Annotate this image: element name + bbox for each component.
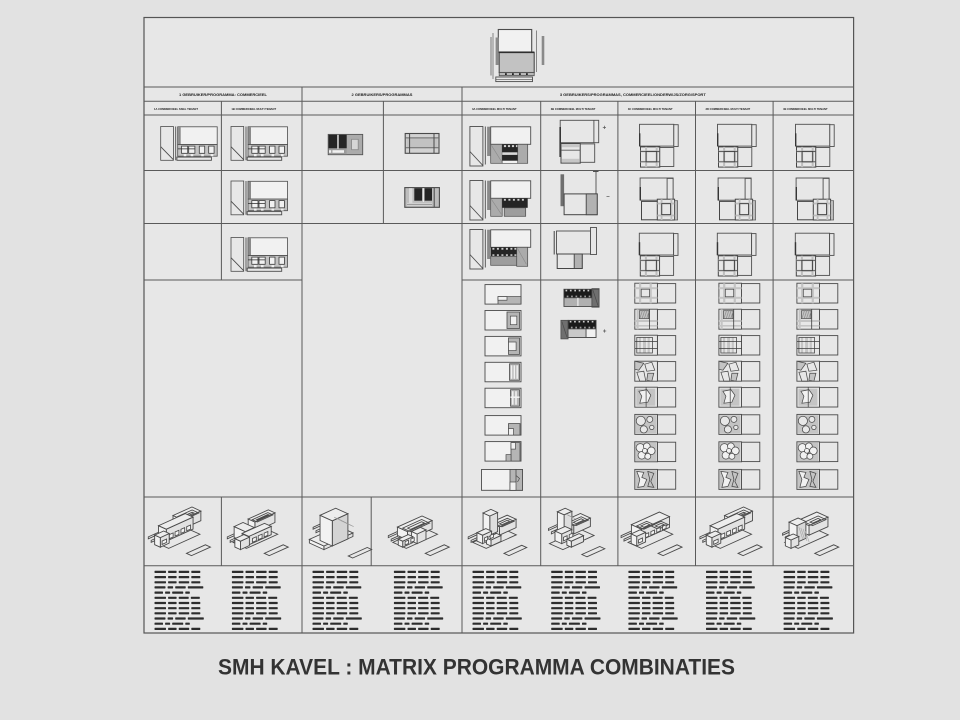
svg-text:1 GEBRUIKER/PROGRAMMA: COMME: 1 GEBRUIKER/PROGRAMMA: COMMERCIEEL [179, 92, 268, 97]
svg-text:3D COMMERCIEEL MULTI TENANT: 3D COMMERCIEEL MULTI TENANT [706, 107, 751, 111]
svg-text:3B COMMERCIEEL MULTI TENANT: 3B COMMERCIEEL MULTI TENANT [551, 107, 596, 111]
svg-text:2 GEBRUIKERS/PROGRAMMAS: 2 GEBRUIKERS/PROGRAMMAS [352, 92, 413, 97]
svg-text:3E COMMERCIEEL MULTI TENANT: 3E COMMERCIEEL MULTI TENANT [783, 107, 828, 111]
svg-text:SMH KAVEL : MATRIX PROGRAMMA: SMH KAVEL : MATRIX PROGRAMMA COMBINATIES [218, 655, 735, 680]
svg-text:1A COMMERCIEEL SNGL TENANT: 1A COMMERCIEEL SNGL TENANT [154, 107, 198, 111]
svg-text:3C COMMERCIEEL MULTI TENANT: 3C COMMERCIEEL MULTI TENANT [628, 107, 673, 111]
svg-text:3 GEBRUIKERS/PROGRAMMAS, COM: 3 GEBRUIKERS/PROGRAMMAS, COMMERCIEEL/OND… [560, 92, 706, 97]
svg-text:3A COMMERCIEEL MULTI TENANT: 3A COMMERCIEEL MULTI TENANT [472, 107, 517, 111]
svg-text:1B COMMERCIEEL MULTI TENANT: 1B COMMERCIEEL MULTI TENANT [231, 107, 276, 111]
